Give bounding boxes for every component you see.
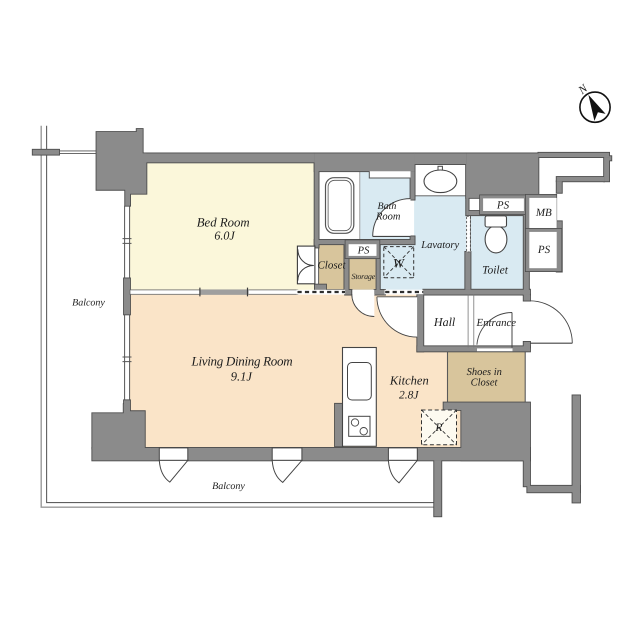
svg-text:W: W: [393, 256, 405, 271]
svg-text:Closet: Closet: [471, 378, 499, 389]
svg-text:2.8J: 2.8J: [399, 389, 419, 401]
svg-text:PS: PS: [537, 244, 551, 256]
svg-text:Entrance: Entrance: [476, 317, 517, 329]
svg-text:PS: PS: [357, 246, 370, 257]
svg-text:Living Dining Room: Living Dining Room: [191, 354, 293, 369]
svg-text:MB: MB: [535, 207, 552, 219]
svg-text:Balcony: Balcony: [212, 481, 245, 492]
svg-text:PS: PS: [496, 199, 510, 211]
svg-text:Room: Room: [375, 211, 401, 222]
svg-text:R: R: [434, 422, 442, 434]
svg-text:9.1J: 9.1J: [231, 369, 254, 383]
svg-text:Toilet: Toilet: [482, 264, 509, 276]
svg-text:Closet: Closet: [317, 259, 346, 271]
svg-text:Lavatory: Lavatory: [420, 240, 459, 251]
svg-text:6.0J: 6.0J: [214, 229, 235, 243]
svg-text:Storage: Storage: [352, 272, 376, 281]
svg-text:Balcony: Balcony: [72, 298, 105, 309]
svg-text:Bed Room: Bed Room: [197, 215, 250, 229]
svg-text:Hall: Hall: [433, 315, 456, 329]
svg-text:Kitchen: Kitchen: [389, 374, 429, 388]
